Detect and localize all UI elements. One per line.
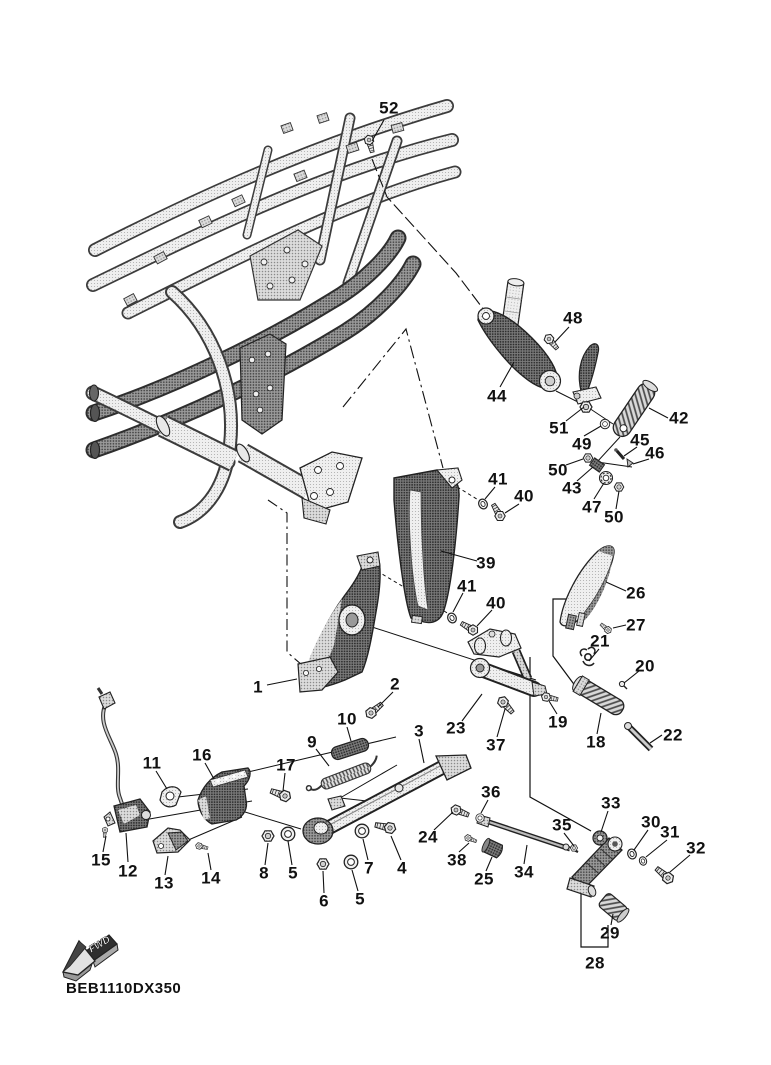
bolt-32 [653, 865, 675, 886]
fwd-arrow: FWD [63, 934, 118, 981]
stand-bracket-1 [298, 552, 380, 692]
bolt-40a [489, 502, 506, 523]
bolt-27 [599, 622, 613, 635]
pin-20 [619, 681, 627, 689]
footrest-bracket-44 [478, 278, 601, 404]
washer-5b [344, 855, 358, 869]
washer-5a [281, 827, 295, 841]
frame-drawing [90, 106, 456, 524]
nut-50a [583, 454, 593, 462]
passenger-footrest-42 [590, 378, 660, 484]
sidestand-switch-12 [98, 688, 151, 832]
bolt-24 [449, 804, 470, 819]
diagram-code: BEB1110DX350 [66, 980, 181, 998]
ring-41b [446, 612, 458, 625]
screw-38 [464, 834, 478, 844]
pin-22 [625, 723, 652, 750]
ring-41a [477, 498, 489, 511]
stand-spring-9 [304, 756, 381, 796]
nut-50b [614, 483, 624, 491]
screw-14 [195, 842, 209, 851]
washer-49 [600, 419, 610, 429]
footrest-18 [570, 674, 627, 718]
ring-30 [626, 848, 637, 860]
switch-bracket-13 [153, 828, 190, 853]
bolt-4 [374, 820, 396, 834]
bolt-17 [269, 786, 292, 803]
parts-diagram-page: FWD 524844514249454650434750414039414026… [0, 0, 771, 1065]
switch-bracket-16 [198, 768, 250, 824]
pivot-linkage-23 [468, 629, 547, 696]
washer-7 [355, 824, 369, 838]
screw-15 [102, 827, 108, 838]
bolt-37 [496, 695, 516, 716]
nut-51 [580, 402, 592, 412]
bolt-48 [543, 332, 561, 351]
pin-45 [617, 451, 623, 458]
stopper-bracket-26 [560, 546, 614, 630]
diagram-svg: FWD [0, 0, 771, 1065]
pedal-rubber-29 [598, 892, 631, 924]
shift-ring-33 [593, 831, 607, 845]
bolt-40b [459, 619, 480, 636]
nut-8 [262, 831, 274, 841]
washer-36 [476, 814, 484, 822]
cable-clamp-11 [160, 787, 181, 807]
heel-guard-39 [394, 468, 462, 624]
cap-nut-25 [480, 837, 504, 859]
stand-damper-10 [330, 737, 370, 761]
nut-6 [317, 859, 329, 869]
